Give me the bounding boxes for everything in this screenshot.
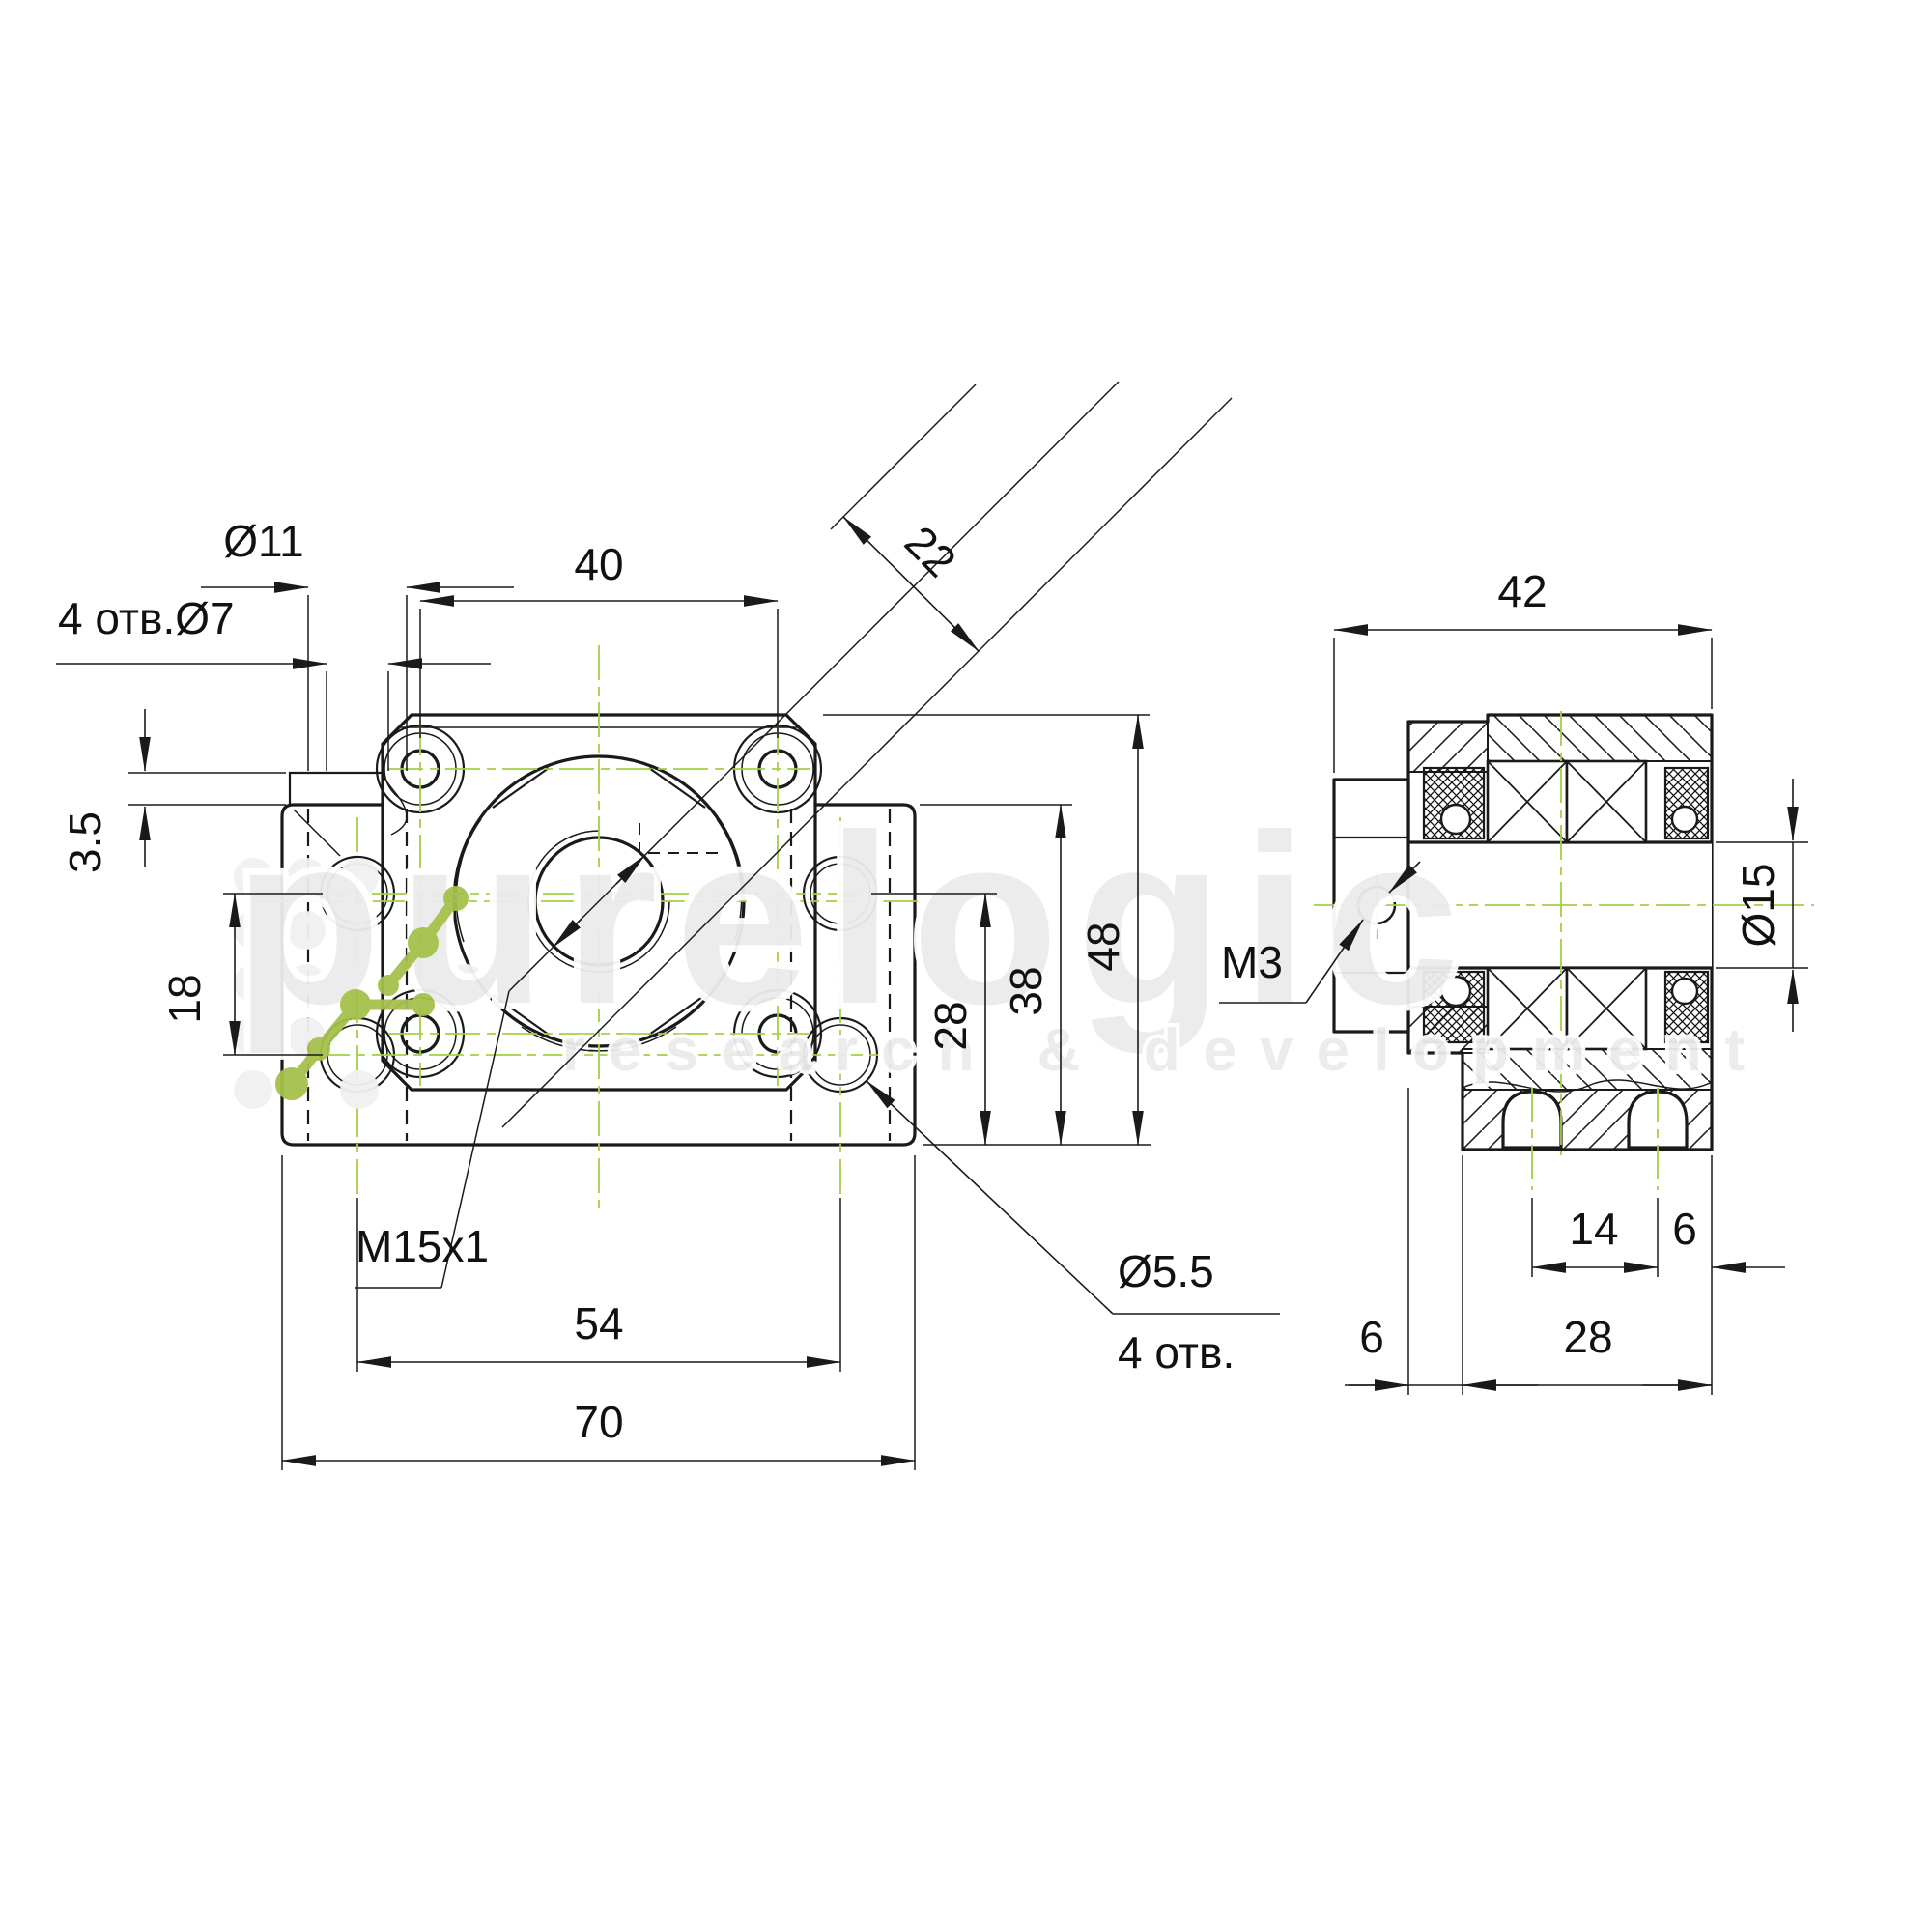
dim-11-label: Ø11 [223, 516, 304, 566]
dim-70-label: 70 [574, 1397, 623, 1447]
dim-28f-label: 28 [925, 1001, 976, 1050]
dim-14: 14 [1532, 1198, 1658, 1277]
dim-6l-label: 6 [1359, 1312, 1384, 1362]
drawing-canvas: purelogic research & development Ø11 [0, 0, 1932, 1932]
dim-35-label: 3.5 [60, 811, 110, 873]
cad-drawing: purelogic research & development Ø11 [0, 0, 1932, 1932]
dim-m15-label: M15x1 [355, 1221, 489, 1271]
dim-42-label: 42 [1497, 566, 1547, 616]
dim-15-label: Ø15 [1733, 864, 1783, 948]
label-mount-holes: Ø5.5 4 отв. [867, 1081, 1280, 1378]
dim-48-label: 48 [1078, 922, 1128, 971]
dim-40-label: 40 [574, 539, 623, 589]
dim-14-label: 14 [1569, 1204, 1618, 1254]
dim-m3-label: M3 [1221, 937, 1283, 987]
dim-28-side: 28 [1463, 1312, 1712, 1385]
dim-hole-counterbore-11: Ø11 [201, 516, 514, 771]
dim-6r-label: 6 [1672, 1204, 1697, 1254]
dim-28s-label: 28 [1563, 1312, 1612, 1362]
dim-holes4-label: 4 отв. [1118, 1327, 1235, 1378]
dim-18-label: 18 [159, 974, 210, 1023]
dim-38-label: 38 [1001, 966, 1051, 1015]
dim-22-label: 22 [895, 516, 966, 586]
dim-54-label: 54 [574, 1298, 623, 1349]
watermark-tagline: research & development [562, 1017, 1768, 1084]
dim-55-label: Ø5.5 [1118, 1246, 1214, 1296]
dim-holes7-label: 4 отв.Ø7 [58, 593, 235, 643]
dim-6-right: 6 [1672, 1155, 1785, 1395]
dim-base-holes-7: 4 отв.Ø7 [56, 593, 491, 771]
